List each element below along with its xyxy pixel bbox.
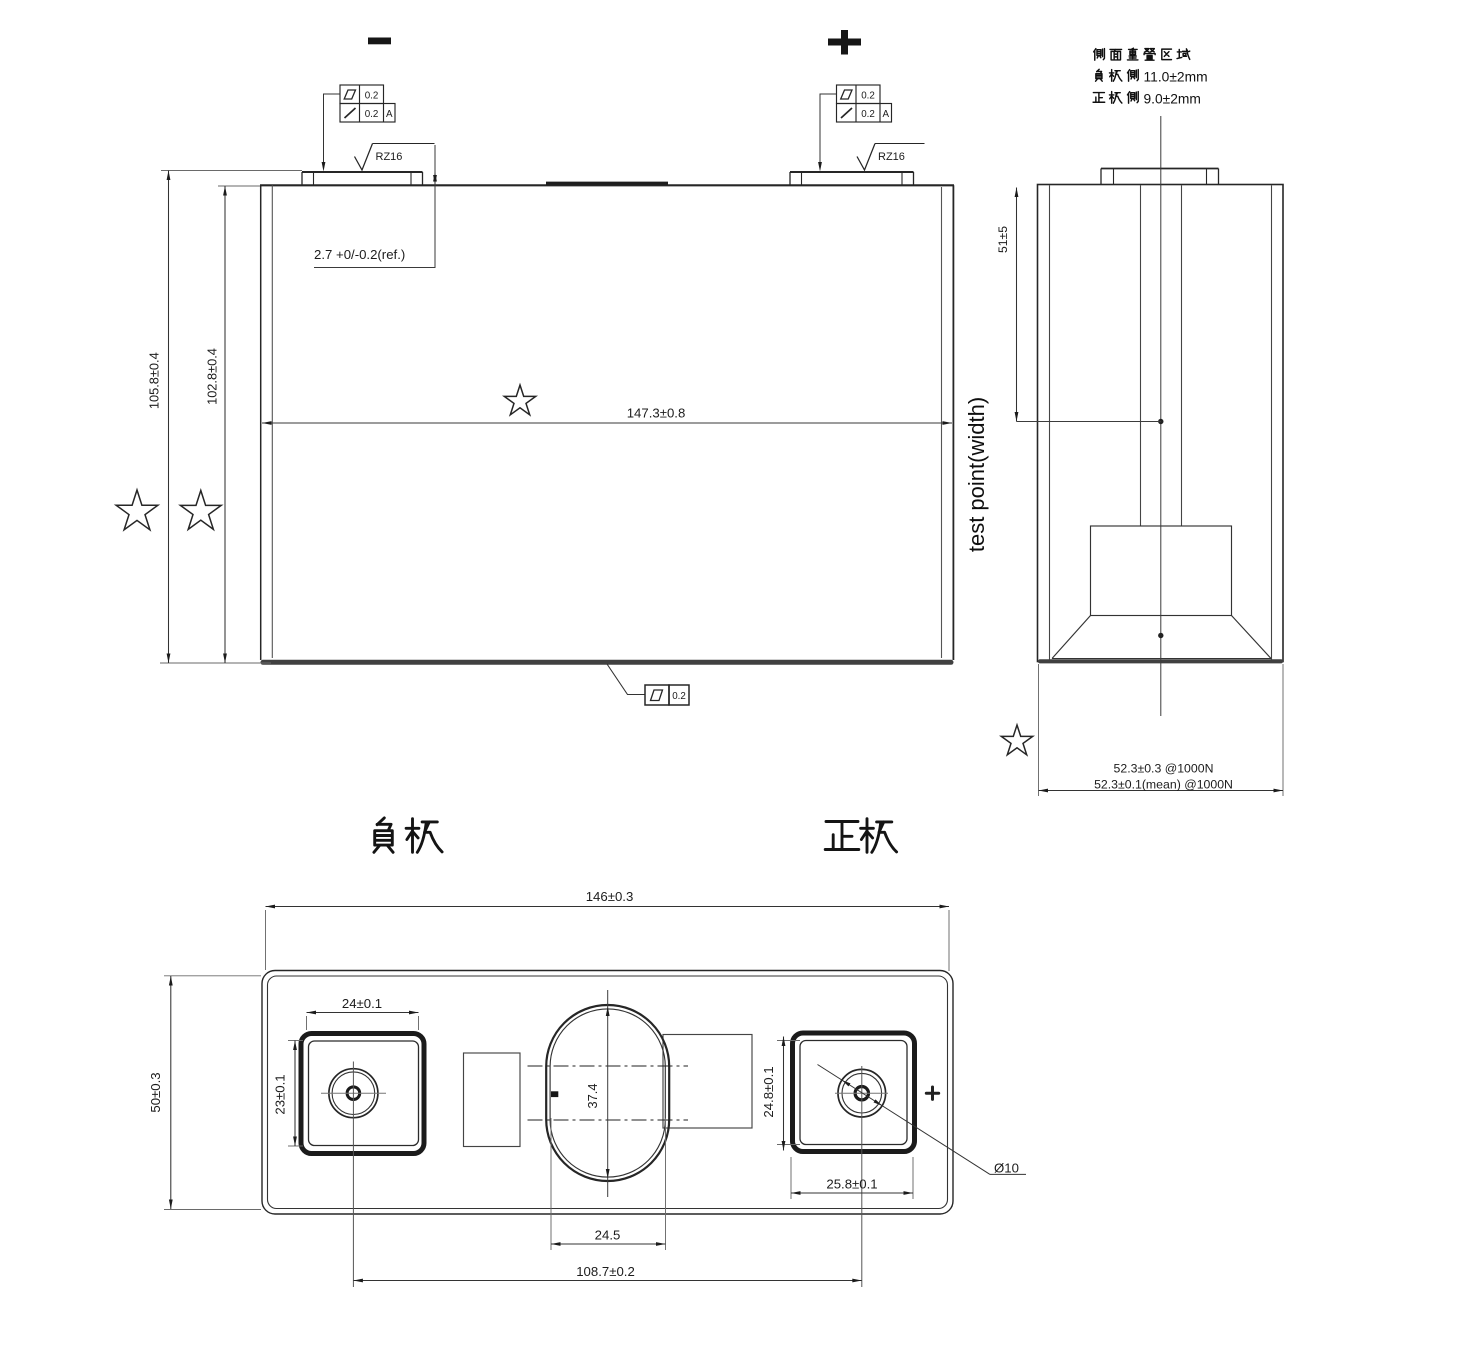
svg-text:51±5: 51±5 (996, 226, 1010, 253)
svg-text:23±0.1: 23±0.1 (272, 1074, 287, 1114)
svg-text:24±0.1: 24±0.1 (342, 996, 382, 1011)
svg-text:24.5: 24.5 (595, 1228, 621, 1243)
svg-text:24.8±0.1: 24.8±0.1 (761, 1066, 776, 1117)
svg-text:Ø10: Ø10 (994, 1161, 1019, 1176)
svg-text:25.8±0.1: 25.8±0.1 (826, 1177, 877, 1192)
svg-text:147.3±0.8: 147.3±0.8 (627, 405, 686, 420)
svg-text:52.3±0.1(mean) @1000N: 52.3±0.1(mean) @1000N (1094, 778, 1233, 792)
svg-text:test point(width): test point(width) (964, 397, 989, 552)
svg-text:2.7 +0/-0.2(ref.): 2.7 +0/-0.2(ref.) (314, 247, 405, 262)
svg-text:52.3±0.3 @1000N: 52.3±0.3 @1000N (1114, 762, 1214, 776)
svg-text:0.2: 0.2 (365, 91, 379, 102)
svg-text:0.2: 0.2 (861, 91, 875, 102)
svg-text:RZ16: RZ16 (878, 151, 905, 163)
svg-text:A: A (883, 109, 890, 120)
svg-text:50±0.3: 50±0.3 (148, 1072, 163, 1112)
svg-text:11.0±2mm: 11.0±2mm (1144, 70, 1208, 85)
svg-text:108.7±0.2: 108.7±0.2 (576, 1264, 635, 1279)
svg-text:102.8±0.4: 102.8±0.4 (205, 348, 220, 405)
svg-text:9.0±2mm: 9.0±2mm (1144, 92, 1201, 107)
svg-text:0.2: 0.2 (365, 109, 379, 120)
svg-text:A: A (386, 109, 393, 120)
svg-text:RZ16: RZ16 (376, 151, 403, 163)
svg-text:146±0.3: 146±0.3 (586, 889, 634, 904)
svg-text:105.8±0.4: 105.8±0.4 (147, 352, 162, 409)
svg-text:0.2: 0.2 (672, 691, 686, 702)
svg-text:0.2: 0.2 (861, 109, 875, 120)
svg-text:37.4: 37.4 (585, 1084, 600, 1109)
